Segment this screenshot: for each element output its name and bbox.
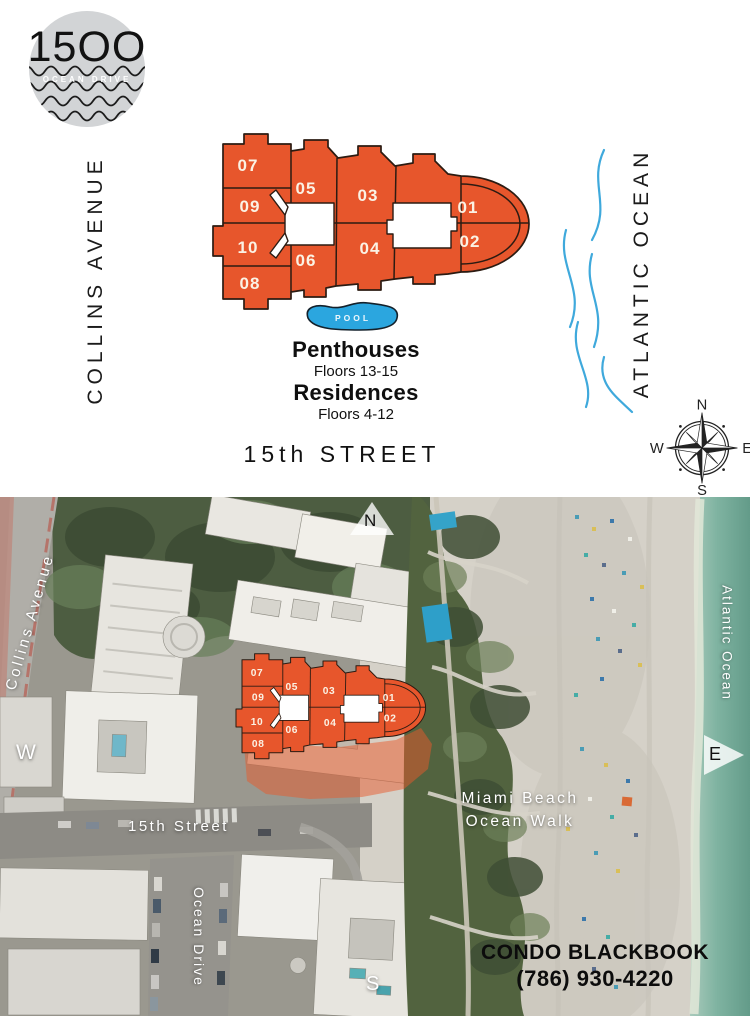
aerial-photo	[0, 497, 750, 1016]
atlantic-ocean-photo-label: Atlantic Ocean	[720, 585, 735, 701]
pool-shape: POOL	[300, 294, 404, 338]
ocean-walk-label-line2: Ocean Walk	[430, 813, 610, 831]
credit-phone: (786) 930-4220	[445, 966, 745, 993]
fifteenth-street-photo-label: 15th Street	[128, 818, 229, 835]
aerial-photo-section: Collins Avenue Atlantic Ocean 15th Stree…	[0, 497, 750, 1016]
compass-s: S	[697, 483, 707, 498]
residences-title: Residences	[216, 382, 496, 404]
building-keyplan	[208, 131, 538, 311]
ocean-wave-strokes-icon	[552, 142, 652, 417]
compass-w: W	[650, 441, 664, 457]
flyer-page: 15OO OCEAN DRIVE COLLINS AVENUE ATLANTIC…	[0, 0, 750, 1016]
credit-name-blackbook: BLACKBOOK	[568, 941, 709, 964]
penthouses-floors: Floors 13-15	[216, 364, 496, 379]
brand-subtitle: OCEAN DRIVE	[43, 75, 132, 84]
ocean-walk-label-line1: Miami Beach	[430, 790, 610, 808]
penthouses-title: Penthouses	[216, 339, 496, 361]
fifteenth-street-label: 15th STREET	[192, 441, 492, 468]
brand-number: 15OO	[28, 23, 147, 71]
north-marker: N	[348, 501, 396, 537]
ocean-drive-photo-label: Ocean Drive	[191, 887, 207, 987]
west-letter: W	[16, 741, 36, 765]
compass-star	[667, 413, 738, 484]
collins-avenue-label: COLLINS AVENUE	[84, 155, 108, 404]
lifeguard-tower	[622, 797, 633, 807]
floors-legend: Penthouses Floors 13-15 Residences Floor…	[216, 336, 496, 422]
east-letter: E	[709, 744, 721, 765]
shoreline-foam	[694, 499, 700, 1014]
residences-floors: Floors 4-12	[216, 407, 496, 422]
compass-n: N	[697, 398, 708, 414]
credit-name-condo: CONDO	[481, 941, 562, 964]
pool-label: POOL	[335, 313, 371, 323]
north-letter: N	[364, 511, 376, 531]
east-marker: E	[702, 733, 746, 777]
credit-name: CONDO BLACKBOOK	[445, 940, 745, 966]
compass-e: E	[742, 441, 750, 457]
credit-block: CONDO BLACKBOOK (786) 930-4220	[445, 940, 745, 992]
pool-deck	[422, 603, 453, 642]
south-letter: S	[366, 973, 379, 996]
brand-logo: 15OO OCEAN DRIVE	[27, 9, 147, 129]
compass-rose-icon: N S E W	[648, 398, 750, 498]
